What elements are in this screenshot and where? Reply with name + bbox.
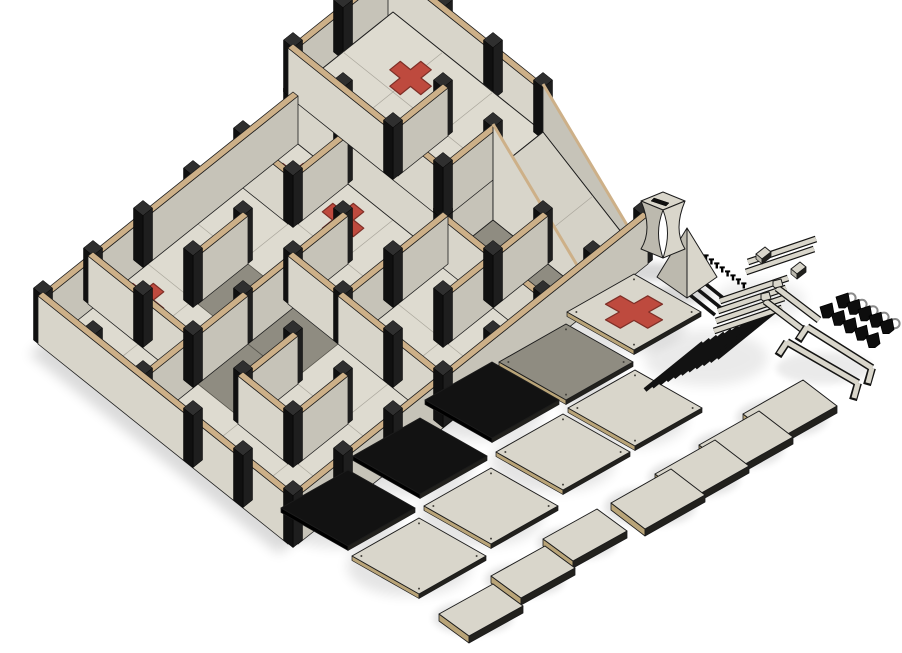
post-face	[384, 248, 394, 308]
tile-corner-mark	[562, 418, 564, 420]
tile-corner-mark	[418, 522, 420, 524]
peg-head	[709, 258, 714, 260]
wall-post	[384, 320, 403, 387]
tile-corner-mark	[507, 361, 509, 363]
post-face	[284, 408, 294, 468]
tile-corner-mark	[633, 278, 635, 280]
wall-post	[134, 280, 153, 347]
tile-corner-mark	[490, 472, 492, 474]
post-face	[134, 288, 144, 348]
column-right-face	[663, 201, 685, 258]
post-face	[493, 248, 503, 308]
tile-corner-mark	[620, 451, 622, 453]
post-face	[393, 120, 403, 180]
rail-foot	[779, 342, 787, 354]
peg-head	[736, 278, 741, 280]
post-face	[393, 248, 403, 308]
post-face	[443, 160, 453, 220]
post-face	[184, 408, 194, 468]
tile-corner-mark	[548, 505, 550, 507]
tile-corner-mark	[623, 361, 625, 363]
end-block	[773, 279, 783, 288]
wall-post	[184, 240, 203, 307]
post-face	[243, 448, 253, 508]
tile-corner-mark	[634, 440, 636, 442]
tile-corner-mark	[476, 555, 478, 557]
tile-corner-mark	[360, 555, 362, 557]
tile-corner-mark	[565, 394, 567, 396]
tile-corner-mark	[432, 505, 434, 507]
post-face	[134, 208, 144, 268]
post-face	[384, 328, 394, 388]
peg-head	[725, 270, 730, 272]
post-face	[493, 40, 503, 100]
fluted-column-piece	[641, 192, 685, 258]
peg-head	[720, 266, 725, 268]
wall-post	[184, 400, 203, 467]
peg-head	[741, 282, 746, 284]
post-face	[143, 288, 153, 348]
tile-corner-mark	[565, 328, 567, 330]
cad-viewport[interactable]	[0, 0, 902, 653]
tile-corner-mark	[418, 588, 420, 590]
post-face	[434, 288, 444, 348]
tile-corner-mark	[692, 407, 694, 409]
wall-post	[284, 160, 303, 227]
post-face	[284, 168, 294, 228]
post-face	[193, 248, 203, 308]
peg-head	[714, 262, 719, 264]
cream-rails-with-blocks	[746, 239, 816, 279]
post-face	[234, 448, 244, 508]
post-face	[193, 408, 203, 468]
tile-corner-mark	[562, 484, 564, 486]
post-face	[184, 248, 194, 308]
post-face	[434, 160, 444, 220]
post-face	[334, 0, 344, 60]
wall-post	[284, 400, 303, 467]
wall-post	[384, 112, 403, 179]
post-face	[443, 288, 453, 348]
wall-post	[184, 320, 203, 387]
post-face	[484, 248, 494, 308]
peg-head	[730, 274, 735, 276]
tile-corner-mark	[504, 451, 506, 453]
end-block	[761, 292, 771, 301]
tile-corner-mark	[691, 311, 693, 313]
tile-corner-mark	[634, 374, 636, 376]
post-face	[193, 328, 203, 388]
tile-corner-mark	[633, 344, 635, 346]
post-face	[293, 408, 303, 468]
tile-corner-mark	[576, 407, 578, 409]
post-face	[293, 168, 303, 228]
wall-post	[434, 280, 453, 347]
post-face	[384, 120, 394, 180]
post-face	[534, 80, 544, 140]
tile-corner-mark	[575, 311, 577, 313]
wall-post	[234, 440, 253, 507]
iso-maze-kit-render	[0, 0, 902, 653]
post-face	[184, 328, 194, 388]
post-face	[143, 208, 153, 268]
wall-post	[384, 240, 403, 307]
wall-post	[434, 152, 453, 219]
post-face	[393, 328, 403, 388]
wall-post	[134, 200, 153, 267]
tile-corner-mark	[490, 538, 492, 540]
wall-post	[484, 240, 503, 307]
